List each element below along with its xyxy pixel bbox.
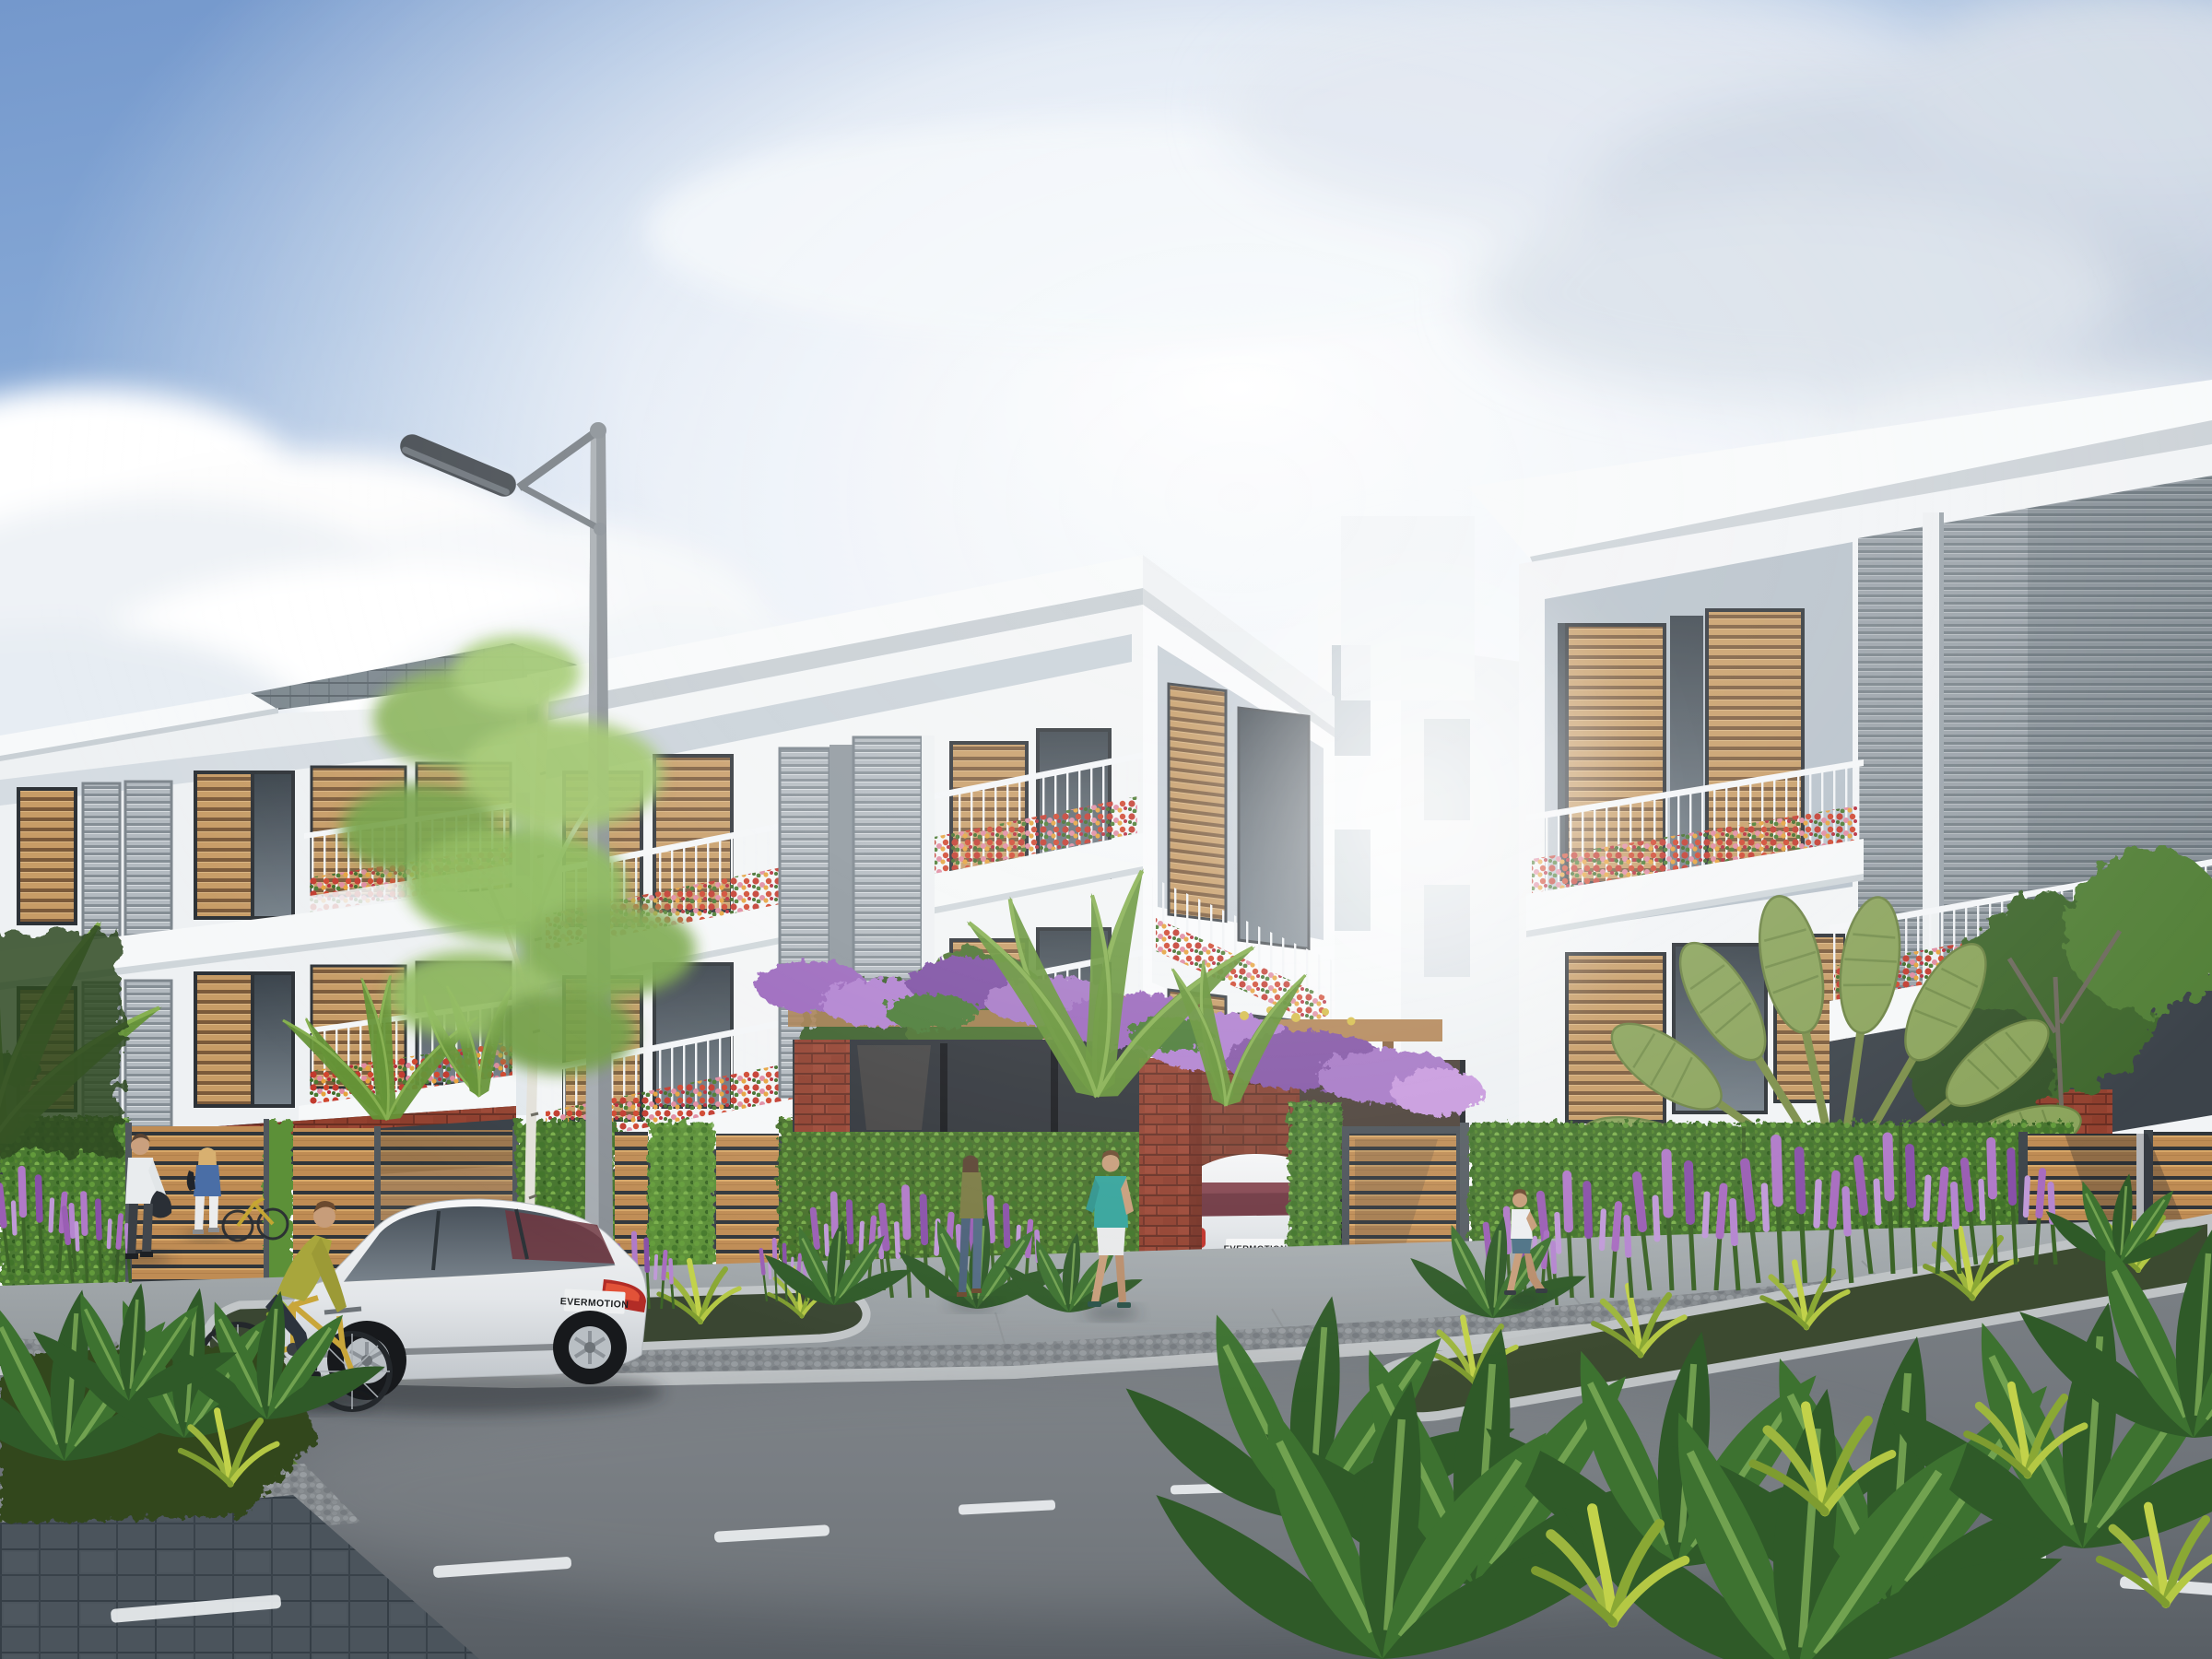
- render-canvas: EVERMOTION: [0, 0, 2212, 1659]
- architectural-rendering-scene: EVERMOTION: [0, 0, 2212, 1659]
- atmosphere-overlay: [0, 0, 2212, 1659]
